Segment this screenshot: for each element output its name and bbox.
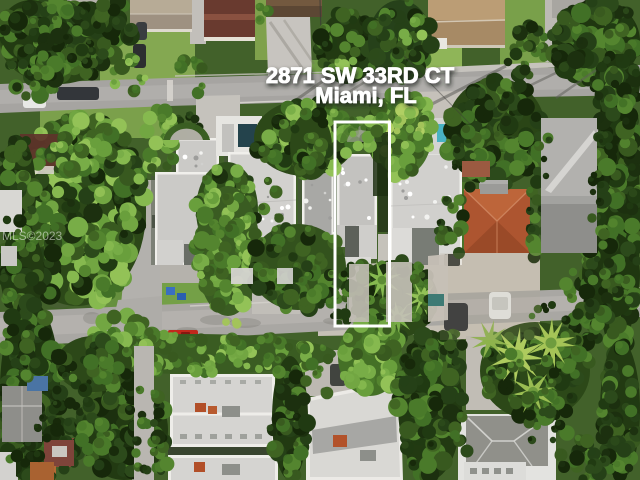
svg-text:Miami, FL: Miami, FL (315, 83, 416, 108)
svg-text:MLS©2023: MLS©2023 (2, 229, 63, 243)
